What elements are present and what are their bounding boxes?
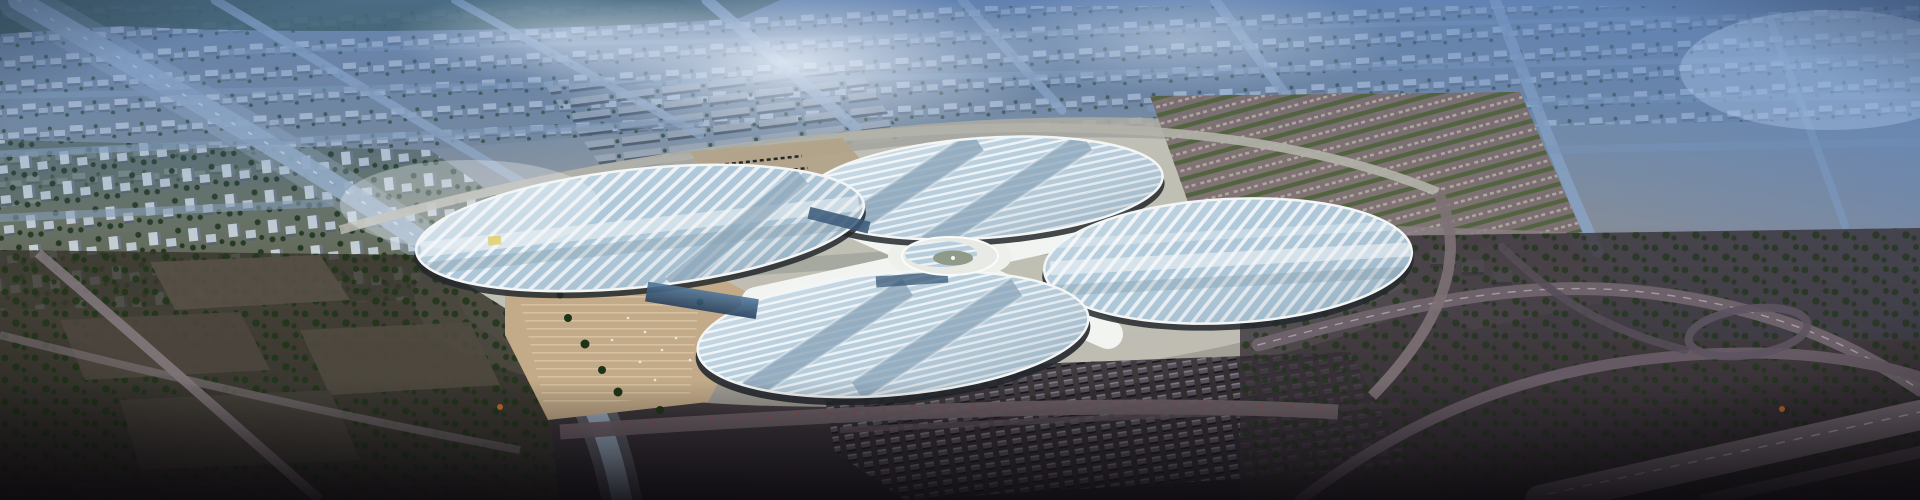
hero-aerial-render [0,0,1920,500]
foreground-overlays [0,0,1920,500]
vignette [0,0,1920,500]
aerial-city-rendering [0,0,1920,500]
